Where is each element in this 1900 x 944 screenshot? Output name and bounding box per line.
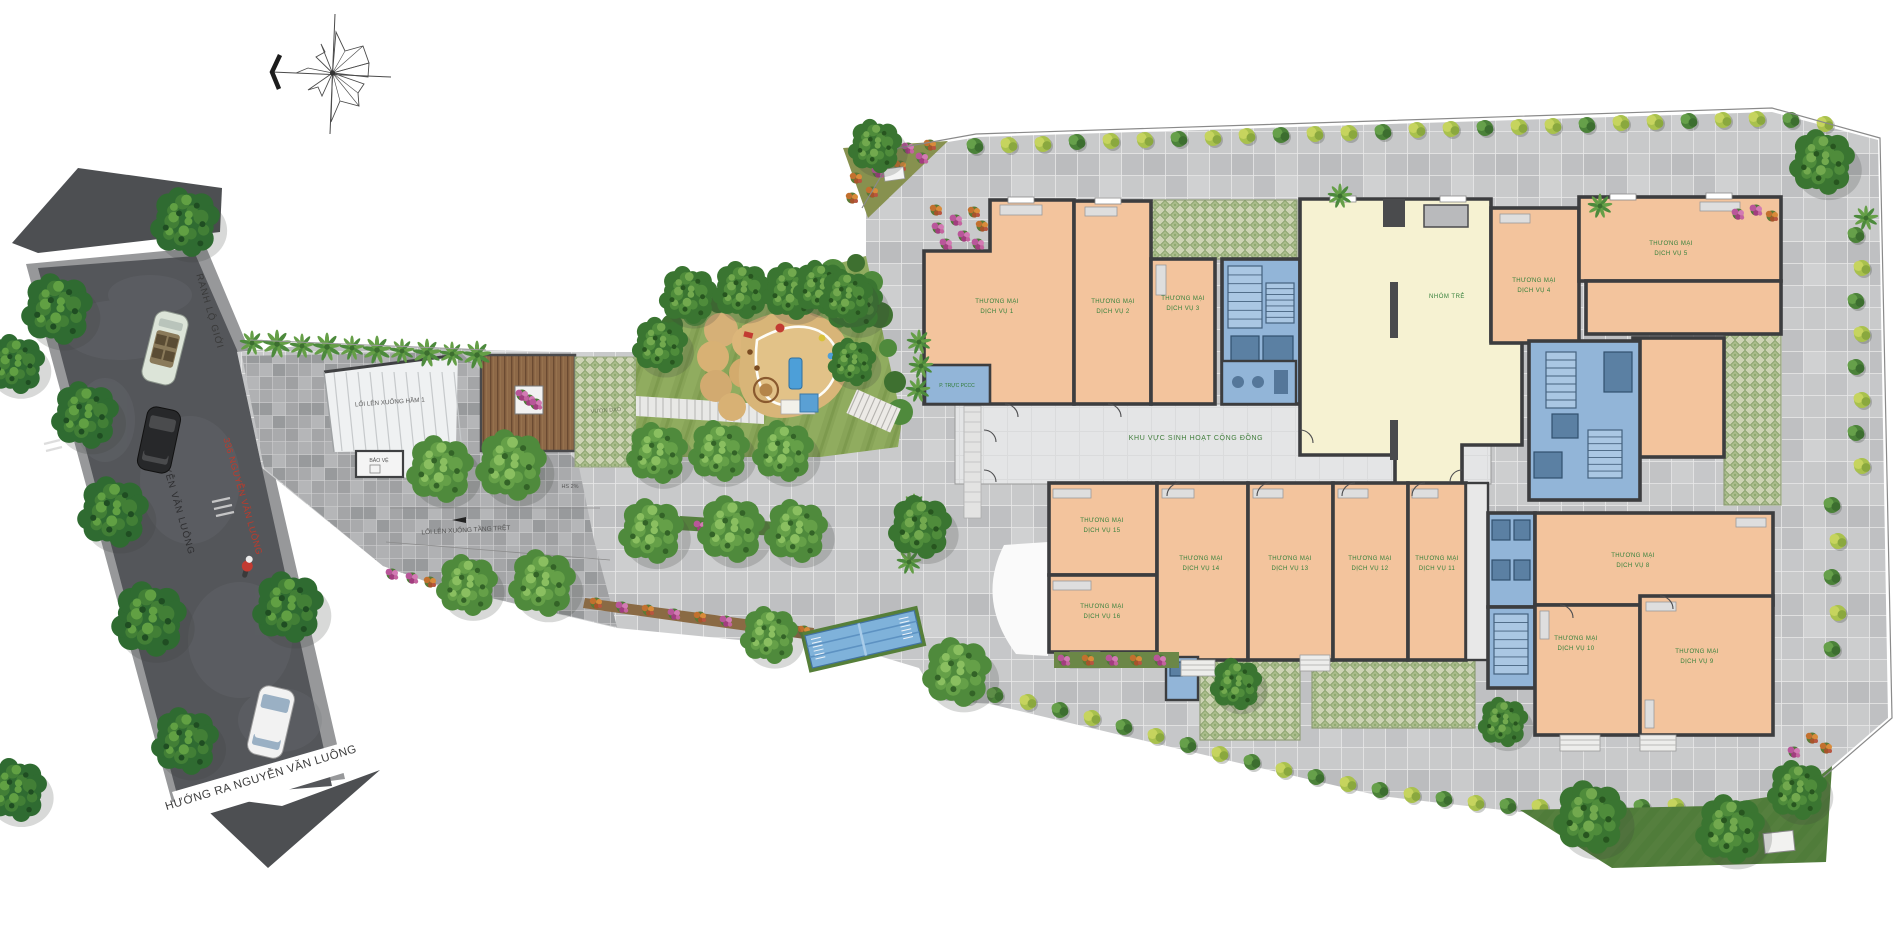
svg-text:THƯƠNG MẠI: THƯƠNG MẠI	[1554, 636, 1598, 642]
svg-text:THƯƠNG MẠI: THƯƠNG MẠI	[1611, 553, 1655, 559]
svg-text:THƯƠNG MẠI: THƯƠNG MẠI	[1675, 649, 1719, 655]
svg-text:NHÓM TRẺ: NHÓM TRẺ	[1429, 293, 1465, 300]
svg-text:THƯƠNG MẠI: THƯƠNG MẠI	[1161, 296, 1205, 302]
svg-text:THƯƠNG MẠI: THƯƠNG MẠI	[1512, 278, 1556, 284]
svg-text:DỊCH VỤ 1: DỊCH VỤ 1	[980, 309, 1014, 315]
svg-text:BẢO VỆ: BẢO VỆ	[369, 456, 389, 464]
svg-text:THƯƠNG MẠI: THƯƠNG MẠI	[1649, 241, 1693, 247]
svg-text:THƯƠNG MẠI: THƯƠNG MẠI	[1268, 556, 1312, 562]
svg-text:HS 2%: HS 2%	[561, 484, 578, 490]
svg-text:THƯƠNG MẠI: THƯƠNG MẠI	[1179, 556, 1223, 562]
svg-text:P. TRỰC PCCC: P. TRỰC PCCC	[939, 383, 975, 389]
svg-text:THƯƠNG MẠI: THƯƠNG MẠI	[1348, 556, 1392, 562]
svg-text:DỊCH VỤ 3: DỊCH VỤ 3	[1166, 306, 1200, 312]
svg-text:DỊCH VỤ 4: DỊCH VỤ 4	[1517, 288, 1551, 294]
svg-text:DỊCH VỤ 16: DỊCH VỤ 16	[1083, 614, 1120, 620]
svg-text:DỊCH VỤ 12: DỊCH VỤ 12	[1351, 566, 1388, 572]
svg-text:THƯƠNG MẠI: THƯƠNG MẠI	[1415, 556, 1459, 562]
svg-text:THƯƠNG MẠI: THƯƠNG MẠI	[1080, 604, 1124, 610]
svg-text:DỊCH VỤ 10: DỊCH VỤ 10	[1557, 646, 1594, 652]
svg-text:DỊCH VỤ 14: DỊCH VỤ 14	[1182, 566, 1219, 572]
svg-text:THƯƠNG MẠI: THƯƠNG MẠI	[975, 299, 1019, 305]
svg-text:DỊCH VỤ 9: DỊCH VỤ 9	[1680, 659, 1714, 665]
svg-text:DỊCH VỤ 2: DỊCH VỤ 2	[1096, 309, 1130, 315]
svg-text:THƯƠNG MẠI: THƯƠNG MẠI	[1091, 299, 1135, 305]
svg-text:DỊCH VỤ 13: DỊCH VỤ 13	[1271, 566, 1308, 572]
svg-text:DỊCH VỤ 11: DỊCH VỤ 11	[1419, 566, 1456, 572]
svg-text:THƯƠNG MẠI: THƯƠNG MẠI	[1080, 518, 1124, 524]
svg-text:DỊCH VỤ 15: DỊCH VỤ 15	[1083, 528, 1120, 534]
svg-text:DỊCH VỤ 5: DỊCH VỤ 5	[1654, 251, 1688, 257]
svg-text:DỊCH VỤ 8: DỊCH VỤ 8	[1616, 563, 1650, 569]
